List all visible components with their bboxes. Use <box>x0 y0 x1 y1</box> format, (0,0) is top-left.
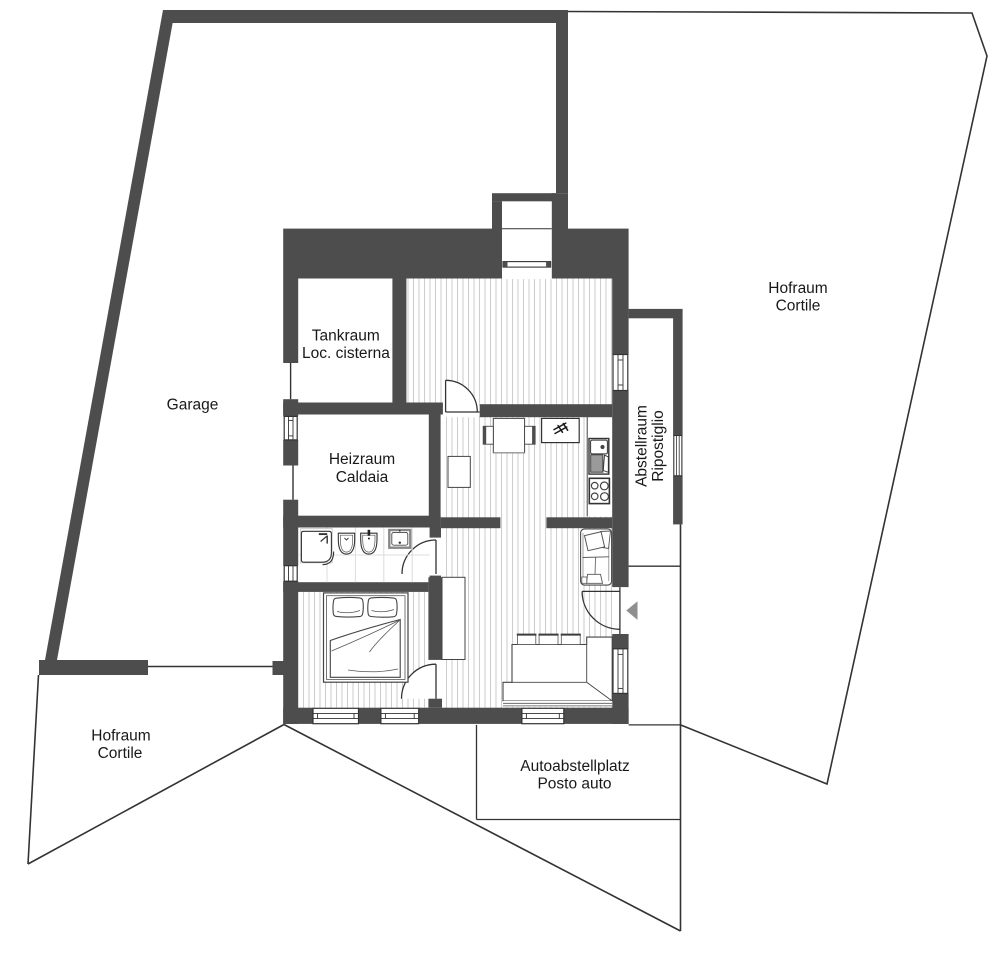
svg-text:Autoabstellplatz: Autoabstellplatz <box>520 758 629 775</box>
svg-text:Caldaia: Caldaia <box>336 469 389 486</box>
svg-text:Cortile: Cortile <box>776 298 821 315</box>
svg-text:Posto auto: Posto auto <box>537 776 611 793</box>
svg-text:Ripostiglio: Ripostiglio <box>650 410 667 482</box>
svg-text:Heizraum: Heizraum <box>329 451 395 468</box>
svg-text:Hofraum: Hofraum <box>768 280 827 297</box>
svg-text:Abstellraum: Abstellraum <box>634 405 651 487</box>
svg-text:Tankraum: Tankraum <box>312 328 380 345</box>
svg-text:Loc. cisterna: Loc. cisterna <box>302 345 390 362</box>
svg-text:Garage: Garage <box>167 397 219 414</box>
svg-text:Cortile: Cortile <box>98 745 143 762</box>
svg-text:Hofraum: Hofraum <box>91 728 150 745</box>
